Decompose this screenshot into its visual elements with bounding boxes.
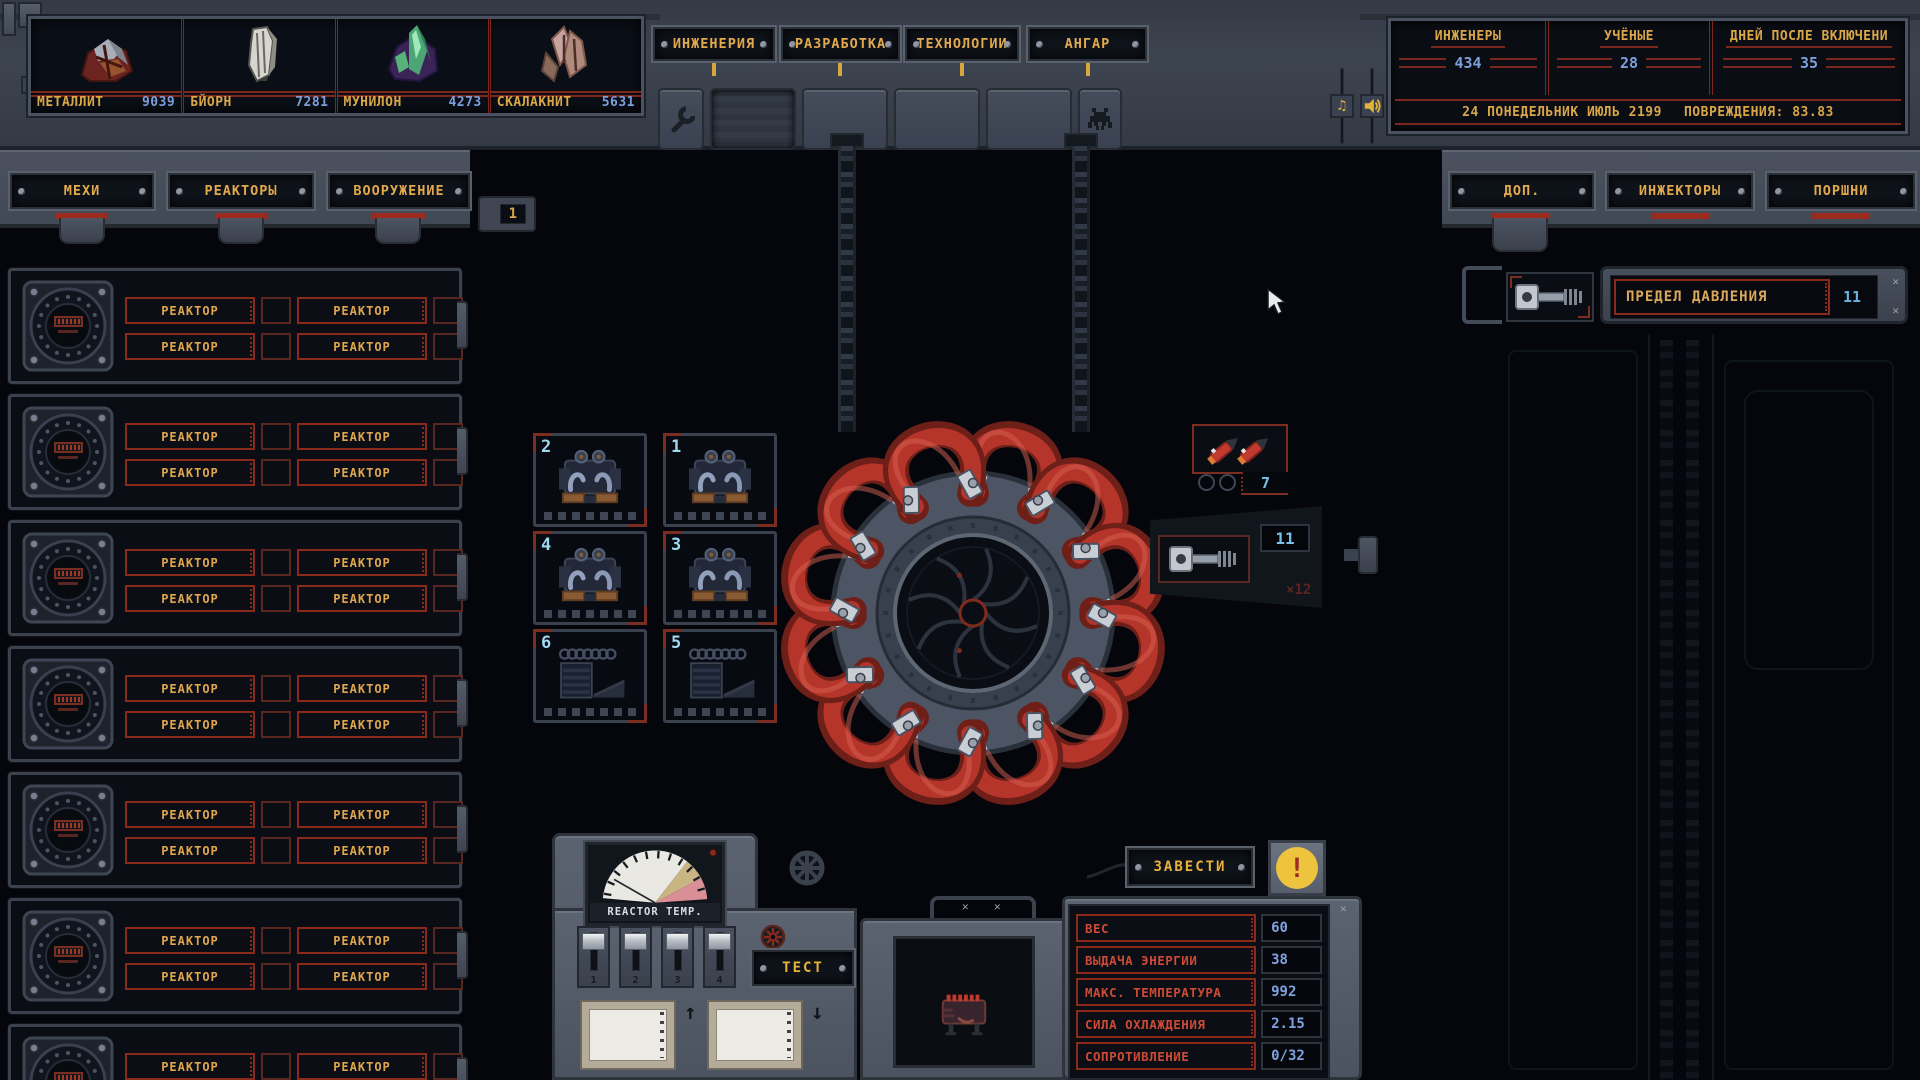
indicator-rosette-icon: [759, 923, 787, 951]
down-arrow-icon[interactable]: ↓: [811, 1000, 824, 1024]
metallite-ore-icon: [74, 23, 138, 87]
reactor-slot-box[interactable]: [433, 963, 463, 990]
frame-bracket: [1462, 266, 1502, 324]
screw-icon: [789, 41, 796, 48]
background-line: [1712, 335, 1714, 1080]
reactor-button[interactable]: РЕАКТОР: [125, 963, 255, 990]
reactor-button[interactable]: РЕАКТОР: [125, 549, 255, 576]
reactor-row: РЕАКТОР РЕАКТОР РЕАКТОР РЕАКТОР: [8, 772, 462, 888]
tab-indicator: [838, 63, 842, 76]
part-slot-4[interactable]: 4: [533, 531, 647, 625]
test-button[interactable]: ТЕСТ: [752, 950, 854, 986]
scientists-value: 28: [1620, 54, 1638, 72]
reactor-button[interactable]: РЕАКТОР: [125, 585, 255, 612]
reactor-core-icon: [22, 280, 114, 372]
tab-label: АНГАР: [1065, 36, 1111, 52]
reactor-part-icon: [933, 985, 995, 1039]
screw-icon: ✕: [1892, 275, 1899, 288]
engine-part-icon: [548, 545, 632, 607]
part-slot-1[interactable]: 1: [663, 433, 777, 527]
bjorn-ore-icon: [227, 23, 291, 87]
reactor-button[interactable]: РЕАКТОР: [297, 459, 427, 486]
damage-label: ПОВРЕЖДЕНИЯ:: [1684, 105, 1784, 120]
stats-panel: ВЕС 60 ВЫДАЧА ЭНЕРГИИ 38 МАКС. ТЕМПЕРАТУ…: [1068, 904, 1330, 1080]
reactor-button[interactable]: РЕАКТОР: [125, 711, 255, 738]
screw-icon: [1900, 188, 1907, 195]
reactor-temp-gauge: REACTOR TEMP.: [585, 842, 725, 926]
red-screw-icon: [710, 849, 717, 856]
reactor-slot-box[interactable]: [433, 423, 463, 450]
tab-technologies[interactable]: ТЕХНОЛОГИИ: [905, 27, 1019, 61]
stat-resistance-label: СОПРОТИВЛЕНИЕ: [1076, 1042, 1256, 1070]
wrench-card-button[interactable]: [658, 88, 704, 150]
reactor-wheel: [773, 413, 1173, 813]
screw-icon: [1132, 41, 1139, 48]
counter-display-down[interactable]: [707, 1000, 803, 1070]
reactor-slot-box[interactable]: [261, 333, 291, 360]
screw-icon: [1135, 864, 1142, 871]
reactor-slot-box[interactable]: [433, 585, 463, 612]
resource-value: 7281: [295, 95, 328, 110]
reactor-button[interactable]: РЕАКТОР: [125, 837, 255, 864]
hook-tag-value: 1: [500, 204, 526, 224]
slot-teeth: [544, 708, 636, 716]
cable: [1085, 855, 1130, 885]
slot-teeth: [544, 610, 636, 618]
reactor-slot-box[interactable]: [433, 459, 463, 486]
background-panel: [1508, 350, 1638, 1070]
reactor-button[interactable]: РЕАКТОР: [125, 675, 255, 702]
screw-icon: [839, 965, 846, 972]
reactor-button[interactable]: РЕАКТОР: [125, 927, 255, 954]
reactor-slot-box[interactable]: [261, 801, 291, 828]
background-line: [1648, 335, 1650, 1080]
tab-label: ИНЖЕКТОРЫ: [1639, 183, 1721, 199]
reactor-button[interactable]: РЕАКТОР: [297, 297, 427, 324]
feeder-knob[interactable]: [1358, 536, 1378, 574]
engineers-value: 434: [1454, 54, 1481, 72]
injector-count: 7: [1241, 472, 1288, 495]
part-preview-window[interactable]: [893, 936, 1035, 1068]
stat-row: СОПРОТИВЛЕНИЕ 0/32: [1076, 1042, 1322, 1070]
bug-icon: [1086, 106, 1114, 132]
tab-label: РЕАКТОРЫ: [204, 183, 277, 199]
switch-label: 2: [621, 975, 650, 986]
skalaknite-ore-icon: [534, 23, 598, 87]
hanging-chain: [838, 146, 856, 432]
reactor-row: РЕАКТОР РЕАКТОР РЕАКТОР РЕАКТОР: [8, 898, 462, 1014]
damage-value: 83.83: [1792, 105, 1834, 120]
counter-display-up[interactable]: [580, 1000, 676, 1070]
screw-icon: [661, 41, 668, 48]
switch-label: 3: [663, 975, 692, 986]
reactor-button[interactable]: РЕАКТОР: [125, 1053, 255, 1080]
screw-icon: [18, 188, 25, 195]
resource-name: БЙОРН: [190, 95, 232, 110]
decor-line: [1723, 58, 1792, 68]
tab-label: ДОП.: [1504, 183, 1541, 199]
reactor-row: РЕАКТОР РЕАКТОР РЕАКТОР РЕАКТОР: [8, 646, 462, 762]
screw-icon: [1036, 41, 1043, 48]
resource-munilon: МУНИЛОН4273: [338, 19, 491, 113]
pressure-limit-panel: ПРЕДЕЛ ДАВЛЕНИЯ 11 ✕ ✕: [1600, 266, 1908, 324]
latch-handle[interactable]: [59, 218, 105, 244]
reactor-button[interactable]: РЕАКТОР: [297, 585, 427, 612]
pressure-limit-label: ПРЕДЕЛ ДАВЛЕНИЯ: [1614, 279, 1830, 315]
decor-line: [1826, 58, 1895, 68]
resource-name: МЕТАЛЛИТ: [37, 95, 104, 110]
days-value: 35: [1800, 54, 1818, 72]
part-slot-3[interactable]: 3: [663, 531, 777, 625]
reactor-core-icon: [22, 784, 114, 876]
part-slot-6[interactable]: 6: [533, 629, 647, 723]
switch-knob[interactable]: [666, 933, 689, 950]
screw-icon: ✕: [962, 900, 969, 913]
reactor-button[interactable]: РЕАКТОР: [297, 927, 427, 954]
tab-extra[interactable]: ДОП.: [1450, 173, 1594, 209]
reactor-slot-box[interactable]: [433, 675, 463, 702]
warning-button[interactable]: !: [1268, 840, 1326, 896]
reactor-button[interactable]: РЕАКТОР: [125, 297, 255, 324]
stat-row: МАКС. ТЕМПЕРАТУРА 992: [1076, 978, 1322, 1006]
blueprint-card-slot[interactable]: [710, 88, 796, 150]
days-since-activation-column: ДНЕЙ ПОСЛЕ ВКЛЮЧЕНИ 35: [1713, 21, 1905, 95]
scientists-column: УЧЁНЫЕ 28: [1549, 21, 1713, 95]
reactor-row: РЕАКТОР РЕАКТОР РЕАКТОР РЕАКТОР: [8, 520, 462, 636]
reactor-core-icon: [22, 406, 114, 498]
reactor-slot-box[interactable]: [261, 675, 291, 702]
tab-indicator: [960, 63, 964, 76]
part-slot-5[interactable]: 5: [663, 629, 777, 723]
screw-icon: [1615, 188, 1622, 195]
decor-line: [1646, 58, 1701, 68]
screw-icon: [913, 41, 920, 48]
reactor-slot-box[interactable]: [261, 1053, 291, 1080]
hanging-chain: [1072, 146, 1090, 432]
reactor-slot-box[interactable]: [261, 711, 291, 738]
reactor-slot-box[interactable]: [433, 297, 463, 324]
resource-value: 5631: [602, 95, 635, 110]
start-engine-button[interactable]: ЗАВЕСТИ: [1127, 848, 1253, 886]
switch-2[interactable]: 2: [619, 926, 652, 988]
background-chain: [1686, 340, 1699, 1080]
tab-mechs[interactable]: МЕХИ: [10, 173, 154, 209]
latch-handle[interactable]: [375, 218, 421, 244]
stat-energy-output-value: 38: [1261, 946, 1322, 974]
background-panel: [1744, 390, 1874, 670]
tab-engineering[interactable]: ИНЖЕНЕРИЯ: [653, 27, 775, 61]
injector-icon: [1233, 427, 1277, 471]
gauge-face: [589, 847, 721, 905]
munilon-crystal-icon: [381, 23, 445, 87]
reactor-slot-box[interactable]: [433, 711, 463, 738]
stat-row: ВЫДАЧА ЭНЕРГИИ 38: [1076, 946, 1322, 974]
reactor-slot-box[interactable]: [261, 423, 291, 450]
reactor-slot-box[interactable]: [433, 333, 463, 360]
reactor-slot-box[interactable]: [433, 549, 463, 576]
reactor-button[interactable]: РЕАКТОР: [125, 459, 255, 486]
screw-icon: [176, 188, 183, 195]
pressure-limit-value: 11: [1830, 279, 1874, 315]
resource-value: 4273: [448, 95, 481, 110]
start-button-label: ЗАВЕСТИ: [1153, 859, 1226, 875]
piston-item-slot[interactable]: [1506, 272, 1594, 322]
screw-icon: [1238, 864, 1245, 871]
corner-vent: [2, 2, 16, 36]
reactor-slot-box[interactable]: [261, 459, 291, 486]
switch-label: 4: [705, 975, 734, 986]
resource-name: СКАЛАКНИТ: [497, 95, 572, 110]
cog-wheel-icon[interactable]: [785, 846, 829, 890]
stat-cooling-value: 2.15: [1261, 1010, 1322, 1038]
piston-icon: [1514, 277, 1586, 317]
screw-icon: [336, 188, 343, 195]
tab-label: ИНЖЕНЕРИЯ: [673, 36, 755, 52]
hook-tag[interactable]: 1: [478, 196, 536, 232]
screw-icon: ✕: [1340, 902, 1347, 915]
tab-development[interactable]: РАЗРАБОТКА: [781, 27, 900, 61]
days-label: ДНЕЙ ПОСЛЕ ВКЛЮЧЕНИ: [1726, 29, 1892, 48]
feeder-value: 11: [1260, 524, 1310, 552]
tab-pistons[interactable]: ПОРШНИ: [1767, 173, 1915, 209]
warning-icon: !: [1276, 847, 1318, 889]
reactor-slot-box[interactable]: [261, 297, 291, 324]
engine-part-icon: [678, 447, 762, 509]
speaker-glyph-icon: [1363, 97, 1381, 115]
reactor-button[interactable]: РЕАКТОР: [125, 333, 255, 360]
reactor-row: РЕАКТОР РЕАКТОР РЕАКТОР РЕАКТОР: [8, 394, 462, 510]
reactor-slot-box[interactable]: [261, 837, 291, 864]
resource-panel: МЕТАЛЛИТ9039 БЙОРН7281 МУНИЛОН4273 СКАЛА…: [28, 16, 644, 116]
screw-icon: [139, 188, 146, 195]
reactor-slot-box[interactable]: [261, 927, 291, 954]
coil-part-icon: [548, 645, 632, 703]
resource-name: МУНИЛОН: [344, 95, 402, 110]
wrench-icon: [667, 105, 695, 133]
game-screen: МЕТАЛЛИТ9039 БЙОРН7281 МУНИЛОН4273 СКАЛА…: [0, 0, 1920, 1080]
slot-teeth: [674, 708, 766, 716]
tab-hangar[interactable]: АНГАР: [1028, 27, 1147, 61]
latch-handle[interactable]: [218, 218, 264, 244]
stat-energy-output-label: ВЫДАЧА ЭНЕРГИИ: [1076, 946, 1256, 974]
music-volume-slider[interactable]: ♫: [1330, 68, 1354, 144]
switch-3[interactable]: 3: [661, 926, 694, 988]
switch-knob[interactable]: [582, 933, 605, 950]
reactor-core-icon: [22, 658, 114, 750]
reactor-core-icon: [22, 532, 114, 624]
switch-4[interactable]: 4: [703, 926, 736, 988]
counter-pip-icon: [1219, 474, 1236, 491]
feeder-multiplier: ×12: [1286, 582, 1311, 598]
part-slot-2[interactable]: 2: [533, 433, 647, 527]
tab-reactors[interactable]: РЕАКТОРЫ: [168, 173, 314, 209]
latch-handle[interactable]: [1492, 218, 1548, 252]
switch-1[interactable]: 1: [577, 926, 610, 988]
display-face: [589, 1009, 667, 1061]
decor-line: [1557, 58, 1612, 68]
sound-volume-slider[interactable]: [1360, 68, 1384, 144]
tab-underline: [1652, 213, 1710, 219]
feeder-piston-slot[interactable]: [1158, 535, 1250, 583]
piston-icon: [1164, 539, 1244, 579]
tab-label: ВООРУЖЕНИЕ: [353, 183, 444, 199]
screw-icon: [760, 41, 767, 48]
display-face: [716, 1009, 794, 1061]
reactor-slot-box[interactable]: [433, 837, 463, 864]
reactor-button[interactable]: РЕАКТОР: [297, 333, 427, 360]
engineers-column: ИНЖЕНЕРЫ 434: [1391, 21, 1549, 95]
stat-row: ВЕС 60: [1076, 914, 1322, 942]
switch-label: 1: [579, 975, 608, 986]
screw-icon: [760, 965, 767, 972]
blueprint-card-slot[interactable]: [894, 88, 980, 150]
reactor-slot-box[interactable]: [261, 963, 291, 990]
tab-label: ТЕХНОЛОГИИ: [916, 36, 1007, 52]
reactor-slot-box[interactable]: [261, 549, 291, 576]
engine-part-icon: [678, 545, 762, 607]
stat-cooling-label: СИЛА ОХЛАЖДЕНИЯ: [1076, 1010, 1256, 1038]
stat-resistance-value: 0/32: [1261, 1042, 1322, 1070]
screw-icon: ✕: [994, 900, 1001, 913]
tab-injectors[interactable]: ИНЖЕКТОРЫ: [1607, 173, 1753, 209]
screw-icon: [885, 41, 892, 48]
status-panel: ИНЖЕНЕРЫ 434 УЧЁНЫЕ 28 ДНЕЙ ПОСЛЕ ВКЛЮЧЕ…: [1388, 18, 1908, 134]
up-arrow-icon[interactable]: ↑: [684, 1000, 697, 1024]
slot-teeth: [674, 512, 766, 520]
decor-line: [1399, 58, 1447, 68]
reactor-slot-box[interactable]: [433, 1053, 463, 1080]
resource-value: 9039: [142, 95, 175, 110]
screw-icon: [1004, 41, 1011, 48]
switch-knob[interactable]: [708, 933, 731, 950]
reactor-slot-box[interactable]: [433, 927, 463, 954]
stat-max-temp-label: МАКС. ТЕМПЕРАТУРА: [1076, 978, 1256, 1006]
reactor-slot-box[interactable]: [261, 585, 291, 612]
tab-indicator: [712, 63, 716, 76]
coil-part-icon: [678, 645, 762, 703]
background-chain: [1660, 340, 1673, 1080]
stat-weight-label: ВЕС: [1076, 914, 1256, 942]
test-button-label: ТЕСТ: [782, 960, 824, 976]
reactor-button[interactable]: РЕАКТОР: [297, 711, 427, 738]
reactor-button[interactable]: РЕАКТОР: [125, 801, 255, 828]
stat-max-temp-value: 992: [1261, 978, 1322, 1006]
stat-weight-value: 60: [1261, 914, 1322, 942]
reactor-core-icon: [22, 1036, 114, 1080]
tab-indicator: [1086, 63, 1090, 76]
engineers-label: ИНЖЕНЕРЫ: [1431, 29, 1506, 48]
tab-underline: [1812, 213, 1870, 219]
reactor-core-icon: [22, 910, 114, 1002]
blueprint-card-slot[interactable]: [986, 88, 1072, 150]
screw-icon: [455, 188, 462, 195]
reactor-button[interactable]: РЕАКТОР: [297, 963, 427, 990]
reactor-button[interactable]: РЕАКТОР: [125, 423, 255, 450]
slot-teeth: [544, 512, 636, 520]
date-text: 24 ПОНЕДЕЛЬНИК ИЮЛЬ 2199: [1462, 105, 1662, 120]
resource-metallite: МЕТАЛЛИТ9039: [31, 19, 184, 113]
injector-item-box[interactable]: [1192, 424, 1288, 474]
screw-icon: [1579, 188, 1586, 195]
reactor-row: РЕАКТОР РЕАКТОР РЕАКТОР РЕАКТОР: [8, 1024, 462, 1080]
reactor-button[interactable]: РЕАКТОР: [297, 549, 427, 576]
warning-glyph: !: [1289, 853, 1305, 884]
resource-skalaknite: СКАЛАКНИТ5631: [491, 19, 641, 113]
tab-label: МЕХИ: [64, 183, 101, 199]
screw-icon: [299, 188, 306, 195]
mouse-cursor: [1266, 288, 1288, 318]
tab-label: РАЗРАБОТКА: [795, 36, 886, 52]
screw-icon: [1738, 188, 1745, 195]
date-damage-bar: 24 ПОНЕДЕЛЬНИК ИЮЛЬ 2199 ПОВРЕЖДЕНИЯ: 83…: [1395, 99, 1901, 125]
switch-knob[interactable]: [624, 933, 647, 950]
screw-icon: [1458, 188, 1465, 195]
counter-pip-icon: [1198, 474, 1215, 491]
decor-line: [1490, 58, 1538, 68]
reactor-button[interactable]: РЕАКТОР: [297, 423, 427, 450]
reactor-button[interactable]: РЕАКТОР: [297, 1053, 427, 1080]
speaker-icon[interactable]: [1360, 94, 1384, 118]
engine-part-icon: [548, 447, 632, 509]
stat-row: СИЛА ОХЛАЖДЕНИЯ 2.15: [1076, 1010, 1322, 1038]
reactor-button[interactable]: РЕАКТОР: [297, 837, 427, 864]
music-note-icon[interactable]: ♫: [1330, 94, 1354, 118]
resource-bjorn: БЙОРН7281: [184, 19, 337, 113]
screw-icon: [1775, 188, 1782, 195]
reactor-button[interactable]: РЕАКТОР: [297, 801, 427, 828]
tab-label: ПОРШНИ: [1814, 183, 1869, 199]
tab-weapons[interactable]: ВООРУЖЕНИЕ: [328, 173, 470, 209]
music-glyph: ♫: [1338, 98, 1346, 114]
reactor-button[interactable]: РЕАКТОР: [297, 675, 427, 702]
gauge-label: REACTOR TEMP.: [590, 903, 720, 921]
reactor-row: РЕАКТОР РЕАКТОР РЕАКТОР РЕАКТОР: [8, 268, 462, 384]
screw-icon: ✕: [1892, 304, 1899, 317]
reactor-slot-box[interactable]: [433, 801, 463, 828]
scientists-label: УЧЁНЫЕ: [1600, 29, 1658, 48]
slot-teeth: [674, 610, 766, 618]
